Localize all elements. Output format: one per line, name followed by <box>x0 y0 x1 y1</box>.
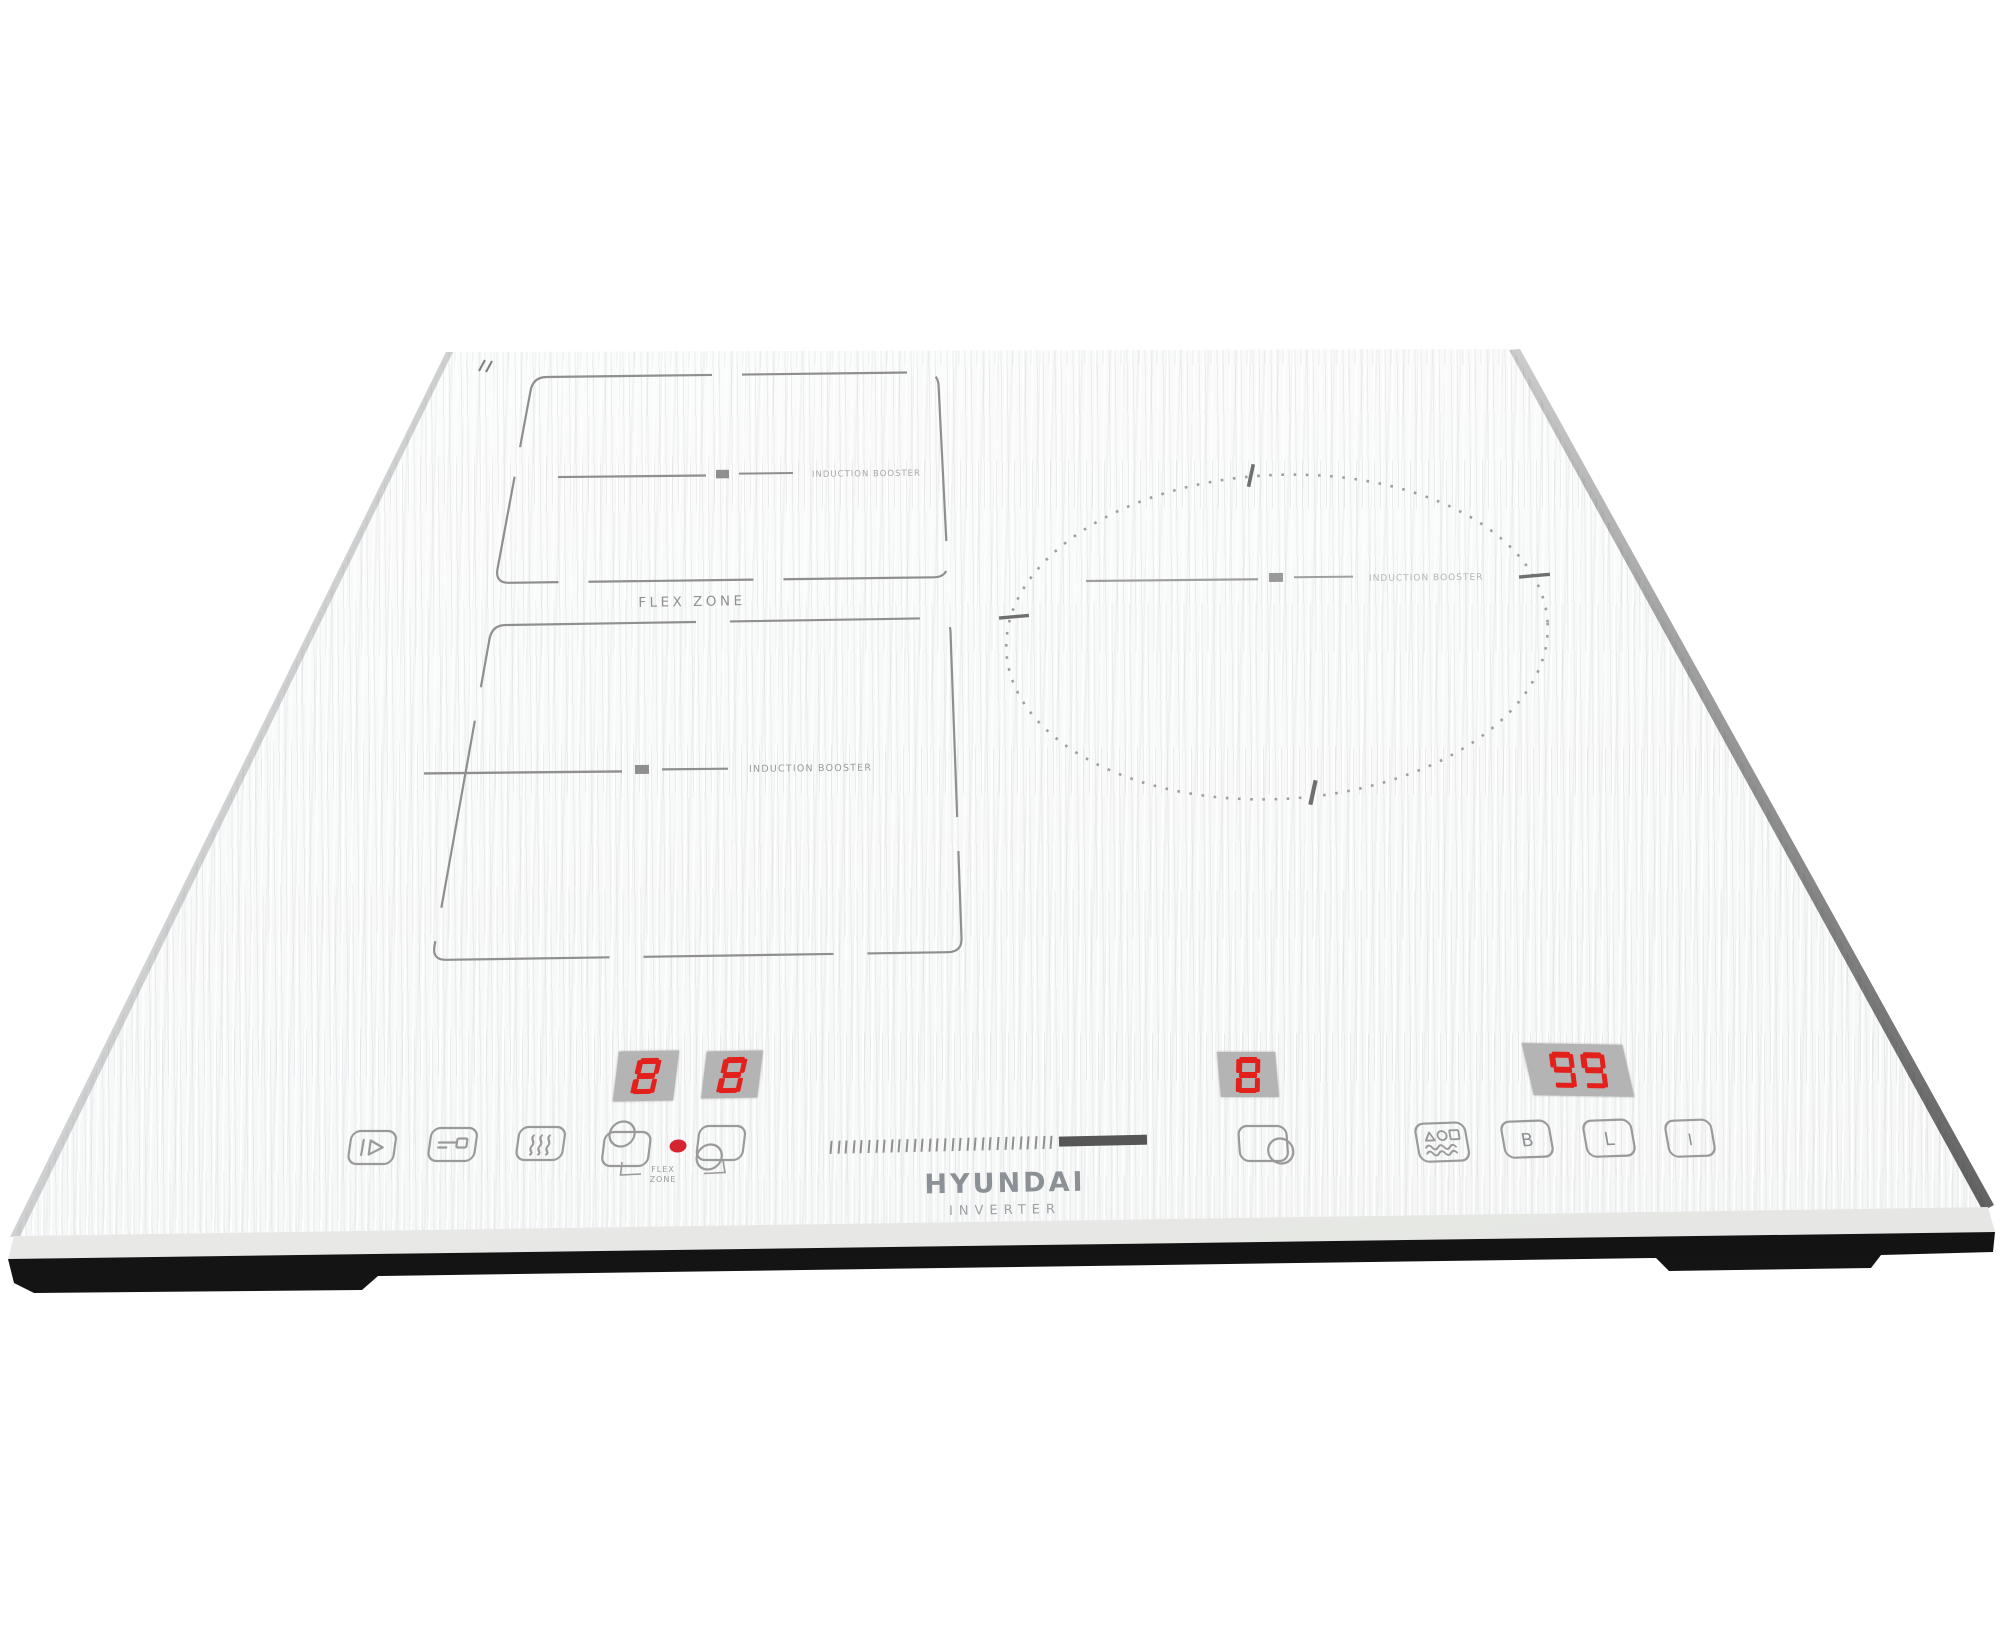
slider-tick <box>936 1138 939 1151</box>
slider-tick <box>997 1137 1000 1150</box>
round-zone-dotted-ring <box>998 461 1556 813</box>
booster-letter: B <box>1519 1130 1535 1151</box>
slider-tick <box>974 1137 977 1150</box>
timer-display <box>1522 1043 1634 1097</box>
slider-tick <box>837 1140 840 1153</box>
slider-tick <box>989 1137 992 1150</box>
flex-upper-booster-label: INDUCTION BOOSTER <box>812 469 921 480</box>
slider-tick <box>1012 1136 1015 1149</box>
markings-layer: FLEX ZONE INDUCTION BOOSTER INDUCTION BO… <box>0 0 2000 1637</box>
booster-icon: B <box>1500 1120 1554 1158</box>
slider-tick <box>883 1139 886 1152</box>
slider-tick <box>921 1138 924 1151</box>
led-digit <box>630 1058 662 1094</box>
cook-functions-icon <box>1414 1122 1470 1162</box>
key-lock-icon <box>427 1128 478 1161</box>
slider-tick <box>890 1139 893 1152</box>
slider-tick <box>1042 1135 1045 1148</box>
flex-lower-booster-marker: INDUCTION BOOSTER <box>424 763 872 779</box>
round-zone-power-display <box>1217 1052 1279 1097</box>
power-slider-ticks <box>830 1135 1052 1153</box>
round-zone-dash-east <box>1519 573 1550 579</box>
power-letter: I <box>1686 1130 1694 1149</box>
slider-tick <box>867 1139 870 1152</box>
slider-tick <box>1019 1136 1022 1149</box>
slider-tick <box>1027 1136 1030 1149</box>
slider-tick <box>1034 1136 1037 1149</box>
flex-upper-booster-marker: INDUCTION BOOSTER <box>558 468 921 483</box>
keep-warm-icon <box>515 1127 566 1160</box>
pause-start-icon <box>347 1131 397 1164</box>
lock-letter: L <box>1602 1129 1616 1150</box>
power-slider-bar <box>1059 1135 1147 1147</box>
slider-tick <box>845 1140 848 1153</box>
flex-zone-outline-lower <box>434 618 961 960</box>
slider-tick <box>966 1137 969 1150</box>
round-zone-dash-south <box>1308 780 1317 805</box>
round-zone-booster-label: INDUCTION BOOSTER <box>1369 573 1483 584</box>
led-digit <box>1236 1057 1261 1093</box>
product-photo-canvas: { "product": { "brand": "HYUNDAI", "bran… <box>0 0 2000 1637</box>
slider-tick <box>1050 1135 1053 1148</box>
slider-tick <box>913 1138 916 1151</box>
flex-bracket-label-2: ZONE <box>650 1175 677 1184</box>
slider-tick <box>959 1137 962 1150</box>
slider-tick <box>943 1138 946 1151</box>
flex-zone-label: FLEX ZONE <box>638 593 746 611</box>
slider-tick <box>875 1139 878 1152</box>
glass-corner-mark <box>479 360 492 372</box>
flex-lower-power-display <box>701 1051 763 1099</box>
slider-tick <box>951 1138 954 1151</box>
round-zone-dash-north <box>1247 464 1255 487</box>
round-zone-dash-west <box>999 614 1029 620</box>
power-indicator-dot <box>669 1138 688 1153</box>
flex-lower-zone-icon <box>695 1126 746 1170</box>
flex-bracket-label-1: FLEX <box>651 1165 675 1174</box>
flex-upper-power-display <box>613 1050 679 1101</box>
power-icon: I <box>1664 1119 1716 1157</box>
led-digit <box>1548 1052 1577 1088</box>
slider-tick <box>905 1139 908 1152</box>
flex-upper-zone-icon <box>601 1122 652 1167</box>
round-zone-select-icon <box>1238 1126 1294 1164</box>
brand-logo: HYUNDAI <box>900 1166 1111 1201</box>
slider-tick <box>830 1140 833 1153</box>
flex-lower-booster-label: INDUCTION BOOSTER <box>749 763 872 775</box>
slider-tick <box>852 1140 855 1153</box>
slider-tick <box>860 1140 863 1153</box>
slider-tick <box>928 1138 931 1151</box>
led-digit <box>716 1056 748 1092</box>
round-zone-booster-marker: INDUCTION BOOSTER <box>1086 571 1483 587</box>
slider-tick <box>1004 1136 1007 1149</box>
lock-icon: L <box>1582 1119 1636 1157</box>
led-digit <box>1579 1052 1608 1088</box>
slider-tick <box>981 1137 984 1150</box>
slider-tick <box>898 1139 901 1152</box>
